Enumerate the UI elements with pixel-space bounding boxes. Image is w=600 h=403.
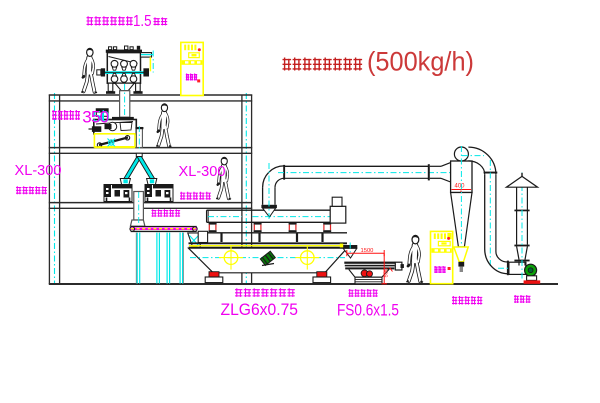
svg-text:XL-300: XL-300: [15, 163, 62, 179]
svg-text:(500kg/h): (500kg/h): [367, 47, 474, 77]
svg-text:XL-300: XL-300: [179, 164, 226, 180]
svg-text:FS0.6x1.5: FS0.6x1.5: [337, 302, 399, 320]
svg-text:1.5: 1.5: [133, 13, 152, 30]
svg-text:ZLG6x0.75: ZLG6x0.75: [221, 301, 299, 319]
svg-text:590: 590: [384, 268, 390, 278]
svg-text:1500: 1500: [361, 248, 374, 254]
svg-text:400: 400: [455, 184, 466, 190]
svg-text:350: 350: [82, 108, 108, 127]
